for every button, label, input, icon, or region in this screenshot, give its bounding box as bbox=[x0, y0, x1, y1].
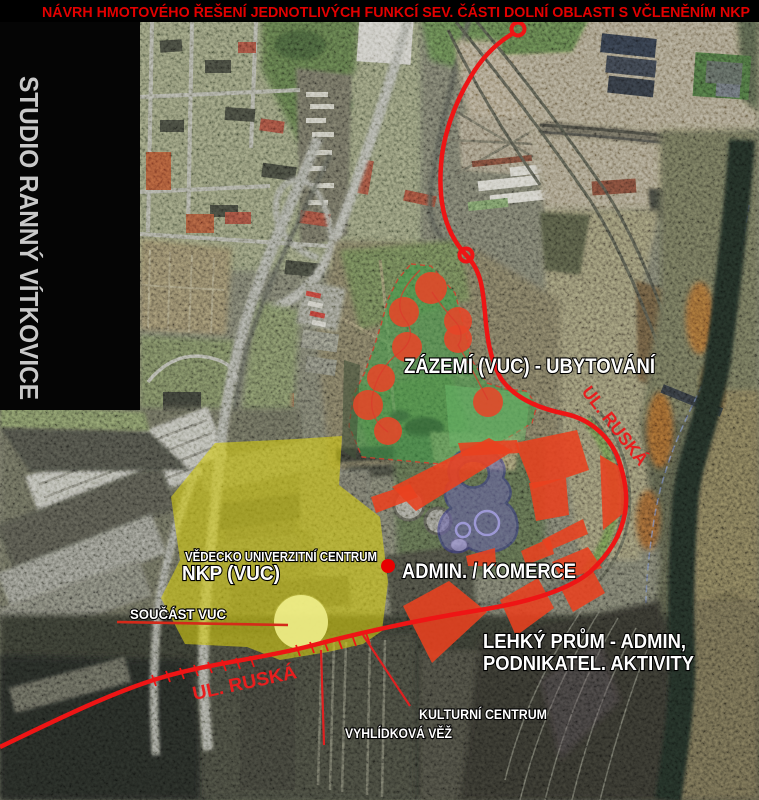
svg-text:VYHLÍDKOVÁ VĚŽ: VYHLÍDKOVÁ VĚŽ bbox=[345, 724, 452, 741]
svg-text:NÁVRH HMOTOVÉHO ŘEŠENÍ JEDNOTL: NÁVRH HMOTOVÉHO ŘEŠENÍ JEDNOTLIVÝCH FUNK… bbox=[42, 3, 750, 21]
svg-text:LEHKÝ PRŮM - ADMIN,: LEHKÝ PRŮM - ADMIN, bbox=[483, 627, 686, 653]
svg-text:KULTURNÍ CENTRUM: KULTURNÍ CENTRUM bbox=[419, 706, 547, 722]
svg-text:ADMIN. / KOMERCE: ADMIN. / KOMERCE bbox=[402, 560, 576, 583]
svg-text:PODNIKATEL. AKTIVITY: PODNIKATEL. AKTIVITY bbox=[483, 653, 695, 675]
svg-text:NKP (VUC): NKP (VUC) bbox=[182, 563, 280, 585]
svg-text:SOUČÁST VUC: SOUČÁST VUC bbox=[130, 607, 226, 622]
svg-text:ZÁZEMÍ (VUC) - UBYTOVÁNÍ: ZÁZEMÍ (VUC) - UBYTOVÁNÍ bbox=[404, 355, 656, 378]
svg-text:VĚDECKO UNIVERZITNÍ CENTRUM: VĚDECKO UNIVERZITNÍ CENTRUM bbox=[185, 549, 377, 564]
svg-text:STUDIO RANNÝ VÍTKOVICE: STUDIO RANNÝ VÍTKOVICE bbox=[14, 76, 44, 400]
